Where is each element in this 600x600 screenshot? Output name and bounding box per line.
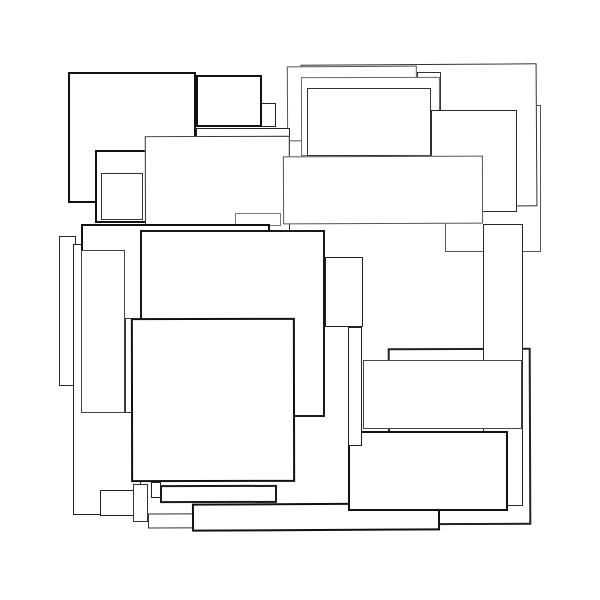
center-right-step-square: [325, 257, 363, 327]
center-wide-rect: [283, 156, 483, 225]
center-narrow-tall-sliver: [348, 327, 362, 446]
abstract-overlapping-squares-artwork: [0, 0, 600, 600]
left-inner-tall-square: [81, 250, 125, 413]
bottom-center-bold-square: [131, 318, 295, 482]
top-center-inner-square: [307, 88, 431, 156]
top-small-bold-square: [196, 75, 262, 127]
left-mid-inner-square: [101, 173, 143, 220]
small-sliver-square: [261, 103, 276, 127]
bottom-right-bold-rect: [348, 431, 508, 511]
right-mid-wide-rect: [363, 360, 522, 429]
bottom-center-band: [160, 485, 277, 503]
bottom-left-small-sliver: [133, 484, 148, 522]
